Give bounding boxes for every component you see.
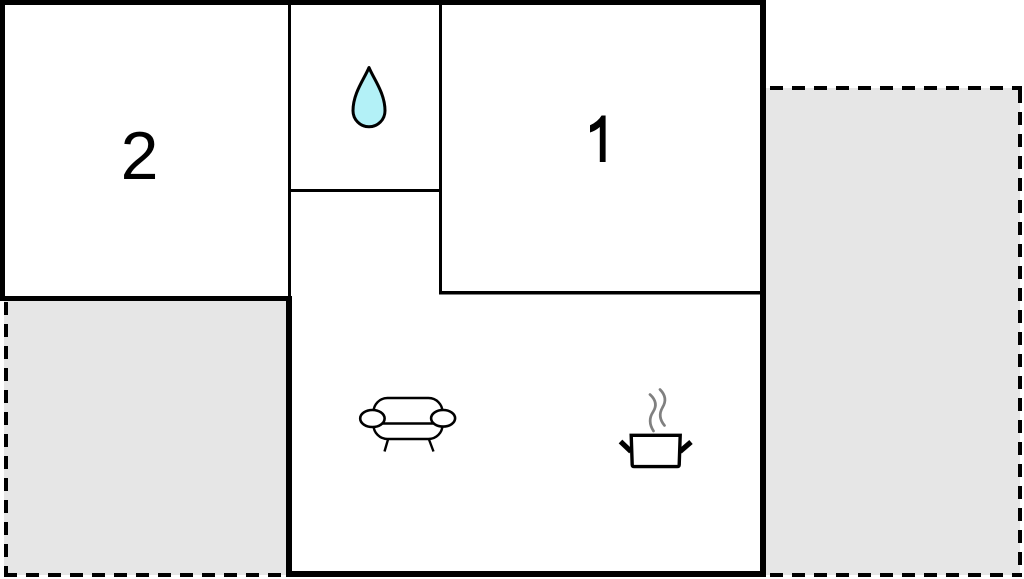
svg-text:2: 2 (121, 118, 159, 194)
